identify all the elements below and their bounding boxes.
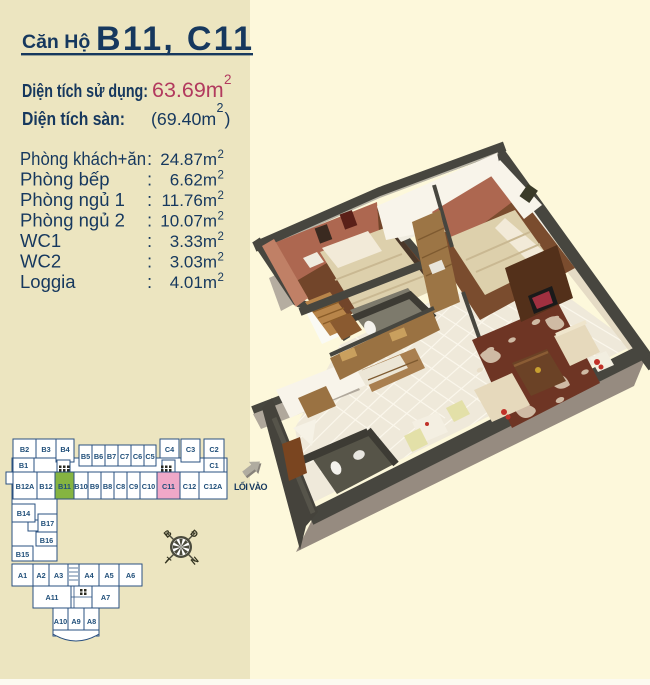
svg-text:B7: B7 (107, 452, 116, 461)
svg-text:C9: C9 (129, 482, 138, 491)
svg-text:C3: C3 (186, 445, 195, 454)
svg-text:2: 2 (218, 272, 224, 284)
svg-text:B12A: B12A (16, 482, 35, 491)
svg-text:C11: C11 (162, 482, 175, 491)
svg-text:): ) (225, 109, 231, 129)
svg-text:Phòng ngủ 2: Phòng ngủ 2 (20, 210, 125, 231)
svg-text:WC2: WC2 (20, 251, 61, 272)
svg-text:2: 2 (224, 72, 232, 87)
svg-text::: : (147, 210, 152, 231)
svg-text:B8: B8 (103, 482, 112, 491)
svg-text:C1: C1 (209, 461, 218, 470)
svg-text:2: 2 (218, 149, 224, 161)
svg-text:(69.40m: (69.40m (151, 109, 216, 129)
svg-text:Loggia: Loggia (20, 271, 76, 292)
svg-text:Diện tích sàn:: Diện tích sàn: (22, 109, 125, 129)
svg-text::: : (147, 251, 152, 272)
svg-text:Phòng khách+ăn: Phòng khách+ăn (20, 148, 146, 169)
svg-text:3.03m: 3.03m (170, 253, 217, 272)
svg-text:C12A: C12A (204, 482, 223, 491)
svg-text:2: 2 (218, 211, 224, 223)
svg-text:A5: A5 (104, 571, 113, 580)
svg-text:C4: C4 (165, 445, 175, 454)
svg-text:C10: C10 (142, 482, 155, 491)
svg-text:A6: A6 (126, 571, 135, 580)
svg-text:A2: A2 (36, 571, 45, 580)
svg-text:3.33m: 3.33m (170, 232, 217, 251)
svg-text:WC1: WC1 (20, 230, 61, 251)
svg-text:C8: C8 (116, 482, 125, 491)
svg-text::: : (147, 148, 152, 169)
svg-text::: : (147, 189, 152, 210)
svg-text:63.69m: 63.69m (152, 78, 224, 102)
svg-text:B5: B5 (81, 452, 90, 461)
svg-text:A3: A3 (54, 571, 63, 580)
svg-text:B11: B11 (58, 482, 71, 491)
svg-text:Căn Hộ: Căn Hộ (22, 31, 90, 53)
svg-text:24.87m: 24.87m (160, 150, 217, 169)
svg-text:2: 2 (218, 170, 224, 182)
svg-text:B10: B10 (74, 482, 87, 491)
svg-text:C12: C12 (183, 482, 196, 491)
svg-text:A4: A4 (84, 571, 94, 580)
svg-text::: : (147, 169, 152, 190)
svg-text::: : (147, 230, 152, 251)
svg-text:C5: C5 (145, 452, 154, 461)
svg-text:B4: B4 (60, 445, 70, 454)
svg-text:A1: A1 (18, 571, 27, 580)
svg-text::: : (147, 271, 152, 292)
svg-text:Diện tích sử dụng:: Diện tích sử dụng: (22, 81, 148, 101)
svg-text:Phòng bếp: Phòng bếp (20, 169, 110, 190)
svg-text:A8: A8 (87, 617, 96, 626)
svg-text:C6: C6 (133, 452, 142, 461)
svg-text:B6: B6 (94, 452, 103, 461)
svg-text:B3: B3 (41, 445, 50, 454)
svg-text:A9: A9 (71, 617, 80, 626)
svg-text:6.62m: 6.62m (170, 171, 217, 190)
svg-text:2: 2 (218, 252, 224, 264)
svg-text:4.01m: 4.01m (170, 273, 217, 292)
svg-text:B17: B17 (41, 519, 54, 528)
svg-text:B2: B2 (20, 445, 29, 454)
svg-text:B14: B14 (17, 509, 31, 518)
svg-text:B9: B9 (90, 482, 99, 491)
svg-text:B16: B16 (40, 536, 53, 545)
svg-text:LỐI VÀO: LỐI VÀO (234, 481, 268, 492)
svg-text:B1: B1 (19, 461, 28, 470)
svg-text:A7: A7 (101, 593, 110, 602)
svg-text:A10: A10 (54, 617, 67, 626)
svg-text:C2: C2 (209, 445, 218, 454)
svg-text:11.76m: 11.76m (162, 191, 217, 210)
svg-text:2: 2 (218, 231, 224, 243)
svg-text:C7: C7 (120, 452, 129, 461)
svg-text:B12: B12 (39, 482, 52, 491)
svg-text:B15: B15 (16, 550, 29, 559)
svg-text:Phòng ngủ 1: Phòng ngủ 1 (20, 189, 125, 210)
svg-text:2: 2 (217, 101, 224, 115)
svg-text:10.07m: 10.07m (160, 212, 217, 231)
svg-text:A11: A11 (46, 593, 59, 602)
svg-text:2: 2 (218, 190, 224, 202)
